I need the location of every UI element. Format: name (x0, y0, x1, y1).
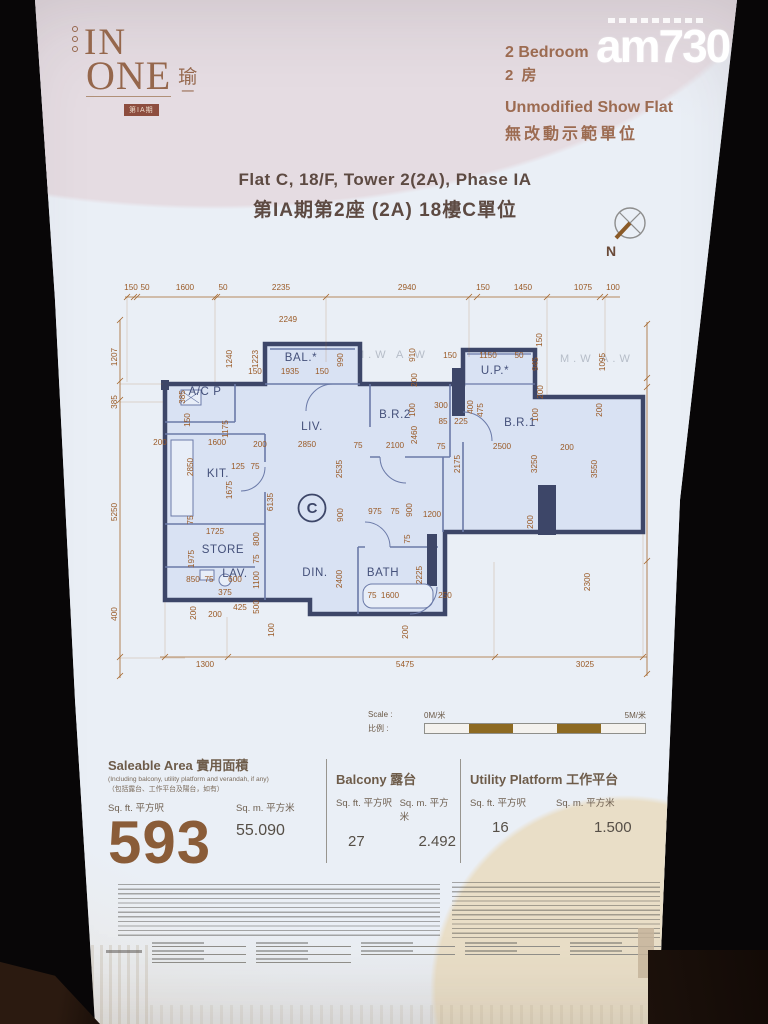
plan-photo-watermark-2: M.W A.W (560, 353, 634, 365)
svg-text:200: 200 (410, 373, 419, 387)
svg-text:1240: 1240 (225, 349, 234, 368)
svg-text:1675: 1675 (225, 480, 234, 499)
svg-text:75: 75 (250, 462, 260, 471)
svg-text:150: 150 (535, 333, 544, 347)
svg-text:1223: 1223 (251, 349, 260, 368)
logo-dots-icon (72, 26, 78, 58)
svg-text:900: 900 (336, 508, 345, 522)
svg-text:1100: 1100 (252, 571, 261, 589)
fine-print-zh (452, 882, 660, 938)
svg-text:200: 200 (595, 403, 604, 417)
svg-text:U.P.*: U.P.* (481, 365, 509, 377)
legend-label (106, 950, 142, 953)
svg-text:2249: 2249 (279, 315, 298, 324)
svg-text:975: 975 (368, 507, 382, 516)
svg-text:DIN.: DIN. (302, 567, 327, 579)
svg-text:400: 400 (110, 607, 119, 621)
svg-text:KIT.: KIT. (207, 468, 229, 480)
svg-text:990: 990 (336, 353, 345, 367)
flat-title-en: Flat C, 18/F, Tower 2(2A), Phase IA (120, 170, 650, 190)
scale-label-en: Scale : (368, 710, 424, 721)
svg-text:1200: 1200 (423, 510, 442, 519)
saleable-note-zh: （包括露台、工作平台及陽台，如有） (108, 783, 313, 793)
legend-row (106, 946, 664, 963)
showflat-zh: 無改動示範單位 (505, 120, 673, 144)
scale-end: 5M/米 (625, 710, 646, 721)
floor-right (648, 950, 768, 1024)
saleable-sqft-value: 593 (108, 814, 236, 871)
svg-text:1600: 1600 (208, 438, 227, 447)
svg-text:2940: 2940 (398, 283, 417, 292)
svg-text:200: 200 (253, 440, 267, 449)
svg-text:75: 75 (186, 515, 195, 525)
svg-text:475: 475 (476, 403, 485, 417)
svg-text:2850: 2850 (186, 457, 195, 476)
svg-text:75: 75 (403, 534, 412, 544)
saleable-title: Saleable Area 實用面積 (108, 755, 313, 774)
sqm-label: Sq. m. 平方米 (556, 795, 615, 809)
inone-logo: IN ONE 瑜 一 第IA期 (72, 26, 222, 117)
svg-text:1150: 1150 (479, 351, 497, 360)
svg-text:2300: 2300 (583, 572, 592, 591)
svg-text:125: 125 (231, 462, 245, 471)
fine-print-en (118, 884, 440, 936)
logo-chinese-name: 瑜 一 (178, 68, 197, 97)
utility-title: Utility Platform 工作平台 (470, 769, 660, 788)
svg-text:900: 900 (405, 503, 414, 517)
plan-photo-watermark: M.W A.W (355, 349, 429, 361)
scale-bar-segments (424, 723, 646, 734)
svg-text:2225: 2225 (415, 565, 424, 584)
svg-text:850: 850 (186, 575, 200, 584)
saleable-area-block: Saleable Area 實用面積 (Including balcony, u… (108, 755, 313, 871)
svg-text:200: 200 (560, 443, 574, 452)
svg-text:LIV.: LIV. (301, 421, 323, 433)
svg-text:945: 945 (531, 357, 540, 371)
balcony-title: Balcony 露台 (336, 769, 456, 788)
svg-text:3025: 3025 (576, 660, 595, 669)
svg-text:150: 150 (248, 367, 262, 376)
balcony-area-block: Balcony 露台 Sq. ft. 平方呎 Sq. m. 平方米 27 2.4… (336, 769, 456, 850)
svg-text:2500: 2500 (493, 442, 512, 451)
sqm-label: Sq. m. 平方米 (236, 800, 295, 814)
am730-logo: am730 (596, 23, 729, 69)
saleable-note-en: (Including balcony, utility platform and… (108, 776, 313, 783)
svg-text:50: 50 (514, 351, 524, 360)
divider (326, 759, 327, 863)
flat-title-zh: 第IA期第2座 (2A) 18樓C單位 (120, 195, 650, 222)
svg-text:200: 200 (153, 438, 167, 447)
svg-text:300: 300 (434, 401, 448, 410)
svg-text:200: 200 (208, 610, 222, 619)
svg-text:2460: 2460 (410, 425, 419, 444)
balcony-sqm-value: 2.492 (408, 833, 456, 850)
floor-plan: M.W A.W M.W A.W (105, 262, 670, 710)
scale-label-zh: 比例 : (368, 723, 424, 734)
svg-text:2100: 2100 (386, 441, 405, 450)
svg-text:1175: 1175 (221, 420, 230, 438)
svg-text:385: 385 (178, 390, 187, 404)
svg-text:75: 75 (390, 507, 400, 516)
am730-watermark: am730 (596, 18, 729, 69)
utility-platform-block: Utility Platform 工作平台 Sq. ft. 平方呎 Sq. m.… (470, 769, 660, 836)
svg-text:BAL.*: BAL.* (285, 352, 317, 364)
svg-text:250: 250 (438, 591, 452, 600)
showflat-en: Unmodified Show Flat (505, 99, 673, 117)
board-stripes-bottom (150, 1005, 650, 1024)
svg-text:C: C (307, 500, 318, 517)
utility-sqft-value: 16 (470, 819, 578, 836)
svg-text:385: 385 (110, 395, 119, 409)
svg-text:375: 375 (218, 588, 232, 597)
svg-text:B.R.2: B.R.2 (379, 409, 411, 421)
phase-badge: 第IA期 (124, 104, 159, 116)
svg-text:100: 100 (408, 403, 417, 417)
divider (460, 759, 461, 863)
display-board: IN ONE 瑜 一 第IA期 2 Bedroom 2 房 Unmodified… (0, 0, 768, 1024)
balcony-sqft-value: 27 (336, 833, 408, 850)
svg-text:200: 200 (189, 606, 198, 620)
svg-text:910: 910 (408, 348, 417, 362)
svg-text:200: 200 (536, 385, 545, 399)
sqft-label: Sq. ft. 平方呎 (336, 795, 400, 823)
svg-text:50: 50 (218, 283, 228, 292)
photo-of-showflat-floorplan-board: { "watermark": {"brand": "am730"}, "head… (0, 0, 768, 1024)
svg-text:100: 100 (606, 283, 620, 292)
svg-text:150: 150 (315, 367, 329, 376)
svg-text:225: 225 (454, 417, 468, 426)
svg-text:150: 150 (476, 283, 490, 292)
saleable-sqm-value: 55.090 (236, 822, 285, 840)
svg-text:1935: 1935 (281, 367, 300, 376)
svg-text:6135: 6135 (266, 492, 275, 511)
svg-text:1450: 1450 (514, 283, 533, 292)
svg-text:1075: 1075 (574, 283, 593, 292)
svg-text:1600: 1600 (176, 283, 195, 292)
svg-text:3550: 3550 (590, 459, 599, 478)
svg-text:1207: 1207 (110, 347, 119, 366)
svg-text:A/C P: A/C P (188, 386, 221, 398)
svg-text:3250: 3250 (530, 454, 539, 473)
svg-text:2535: 2535 (335, 459, 344, 478)
svg-text:1300: 1300 (196, 660, 215, 669)
svg-text:5475: 5475 (396, 660, 415, 669)
svg-text:1095: 1095 (598, 352, 607, 371)
utility-sqm-value: 1.500 (578, 819, 632, 836)
scale-start: 0M/米 (424, 710, 445, 721)
svg-text:800: 800 (252, 532, 261, 546)
svg-text:5250: 5250 (110, 502, 119, 521)
am730-tagline (608, 18, 704, 23)
floor-left (0, 955, 100, 1024)
sqft-label: Sq. ft. 平方呎 (470, 795, 556, 809)
svg-text:BATH: BATH (367, 567, 399, 579)
svg-text:2400: 2400 (335, 569, 344, 588)
svg-text:75: 75 (353, 441, 363, 450)
svg-text:400: 400 (466, 400, 475, 414)
svg-text:2175: 2175 (453, 454, 462, 473)
svg-text:200: 200 (401, 625, 410, 639)
logo-one: ONE (86, 58, 171, 97)
svg-text:425: 425 (233, 603, 247, 612)
svg-text:150: 150 (443, 351, 457, 360)
svg-text:75: 75 (436, 442, 446, 451)
svg-text:500: 500 (252, 600, 261, 614)
svg-text:75: 75 (204, 575, 214, 584)
svg-text:2850: 2850 (298, 440, 317, 449)
svg-text:75: 75 (367, 591, 377, 600)
svg-text:STORE: STORE (202, 544, 244, 556)
svg-text:75: 75 (252, 554, 261, 564)
svg-text:150: 150 (124, 283, 138, 292)
svg-text:600: 600 (228, 575, 242, 584)
compass-n-label: N (606, 243, 616, 259)
svg-text:200: 200 (526, 515, 535, 529)
svg-text:1725: 1725 (206, 527, 225, 536)
svg-text:85: 85 (438, 417, 448, 426)
svg-text:100: 100 (267, 623, 276, 637)
svg-text:50: 50 (140, 283, 150, 292)
sqm-label: Sq. m. 平方米 (400, 795, 456, 823)
svg-text:100: 100 (531, 408, 540, 422)
svg-text:2235: 2235 (272, 283, 291, 292)
scale-bar: Scale : 0M/米 5M/米 比例 : (368, 710, 646, 734)
north-compass-icon: N (598, 202, 660, 264)
svg-text:150: 150 (183, 413, 192, 427)
svg-text:1975: 1975 (187, 549, 196, 568)
svg-text:1600: 1600 (381, 591, 400, 600)
flat-title: Flat C, 18/F, Tower 2(2A), Phase IA 第IA期… (120, 170, 650, 222)
